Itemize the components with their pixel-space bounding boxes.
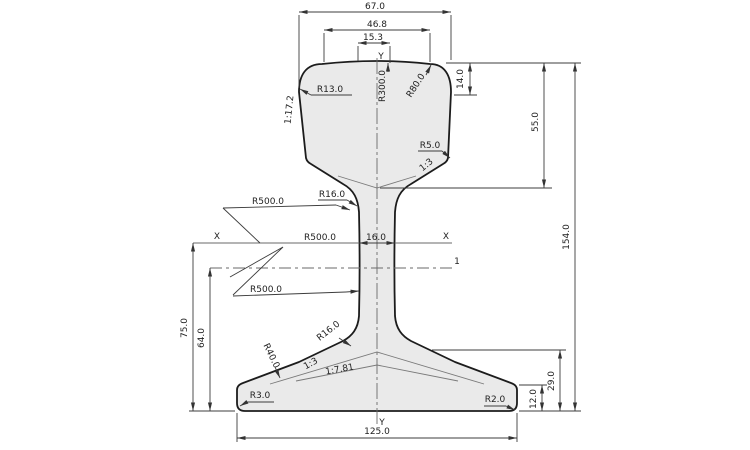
radius-crown: R300.0 bbox=[378, 70, 388, 102]
dim-foot-edge-height: 12.0 bbox=[529, 389, 539, 409]
radius-web-fillet-top: R16.0 bbox=[319, 190, 346, 200]
drawing-canvas: 67.0 46.8 15.3 Y 14.0 R13.0 R300.0 R80.0… bbox=[0, 0, 750, 450]
radius-web-face-mid: R500.0 bbox=[304, 233, 336, 243]
y-axis-top-label: Y bbox=[377, 52, 384, 62]
radius-foot-corner-left: R3.0 bbox=[250, 391, 271, 401]
dim-foot-slope-height: 29.0 bbox=[547, 371, 557, 391]
dim-head-top-width: 46.8 bbox=[367, 20, 387, 30]
dim-web-thickness: 16.0 bbox=[366, 233, 386, 243]
dim-head-height: 55.0 bbox=[531, 112, 541, 132]
radius-underhead: R5.0 bbox=[420, 141, 441, 151]
slope-head-side: 1:17.2 bbox=[284, 95, 297, 125]
x-axis-left-label: X bbox=[214, 232, 220, 242]
section-line-label: 1 bbox=[454, 257, 460, 267]
dim-total-height: 154.0 bbox=[562, 224, 572, 250]
radius-web-fillet-bottom: R16.0 bbox=[315, 319, 342, 343]
radius-foot-corner-right: R2.0 bbox=[485, 395, 506, 405]
rail-section-drawing: 67.0 46.8 15.3 Y 14.0 R13.0 R300.0 R80.0… bbox=[0, 0, 750, 450]
dim-crown-width: 15.3 bbox=[363, 33, 383, 43]
dim-section-line-height: 64.0 bbox=[197, 328, 207, 348]
radius-web-face-upper: R500.0 bbox=[252, 197, 284, 207]
radius-web-face-lower: R500.0 bbox=[250, 285, 282, 295]
dim-head-side-height: 14.0 bbox=[456, 69, 466, 89]
radius-head-corner: R13.0 bbox=[317, 85, 344, 95]
radius-foot-blend: R40.0 bbox=[261, 342, 282, 370]
dim-foot-width: 125.0 bbox=[364, 427, 390, 437]
dim-neutral-axis-height: 75.0 bbox=[180, 318, 190, 338]
dim-head-width: 67.0 bbox=[365, 2, 385, 12]
x-axis-right-label: X bbox=[443, 232, 449, 242]
